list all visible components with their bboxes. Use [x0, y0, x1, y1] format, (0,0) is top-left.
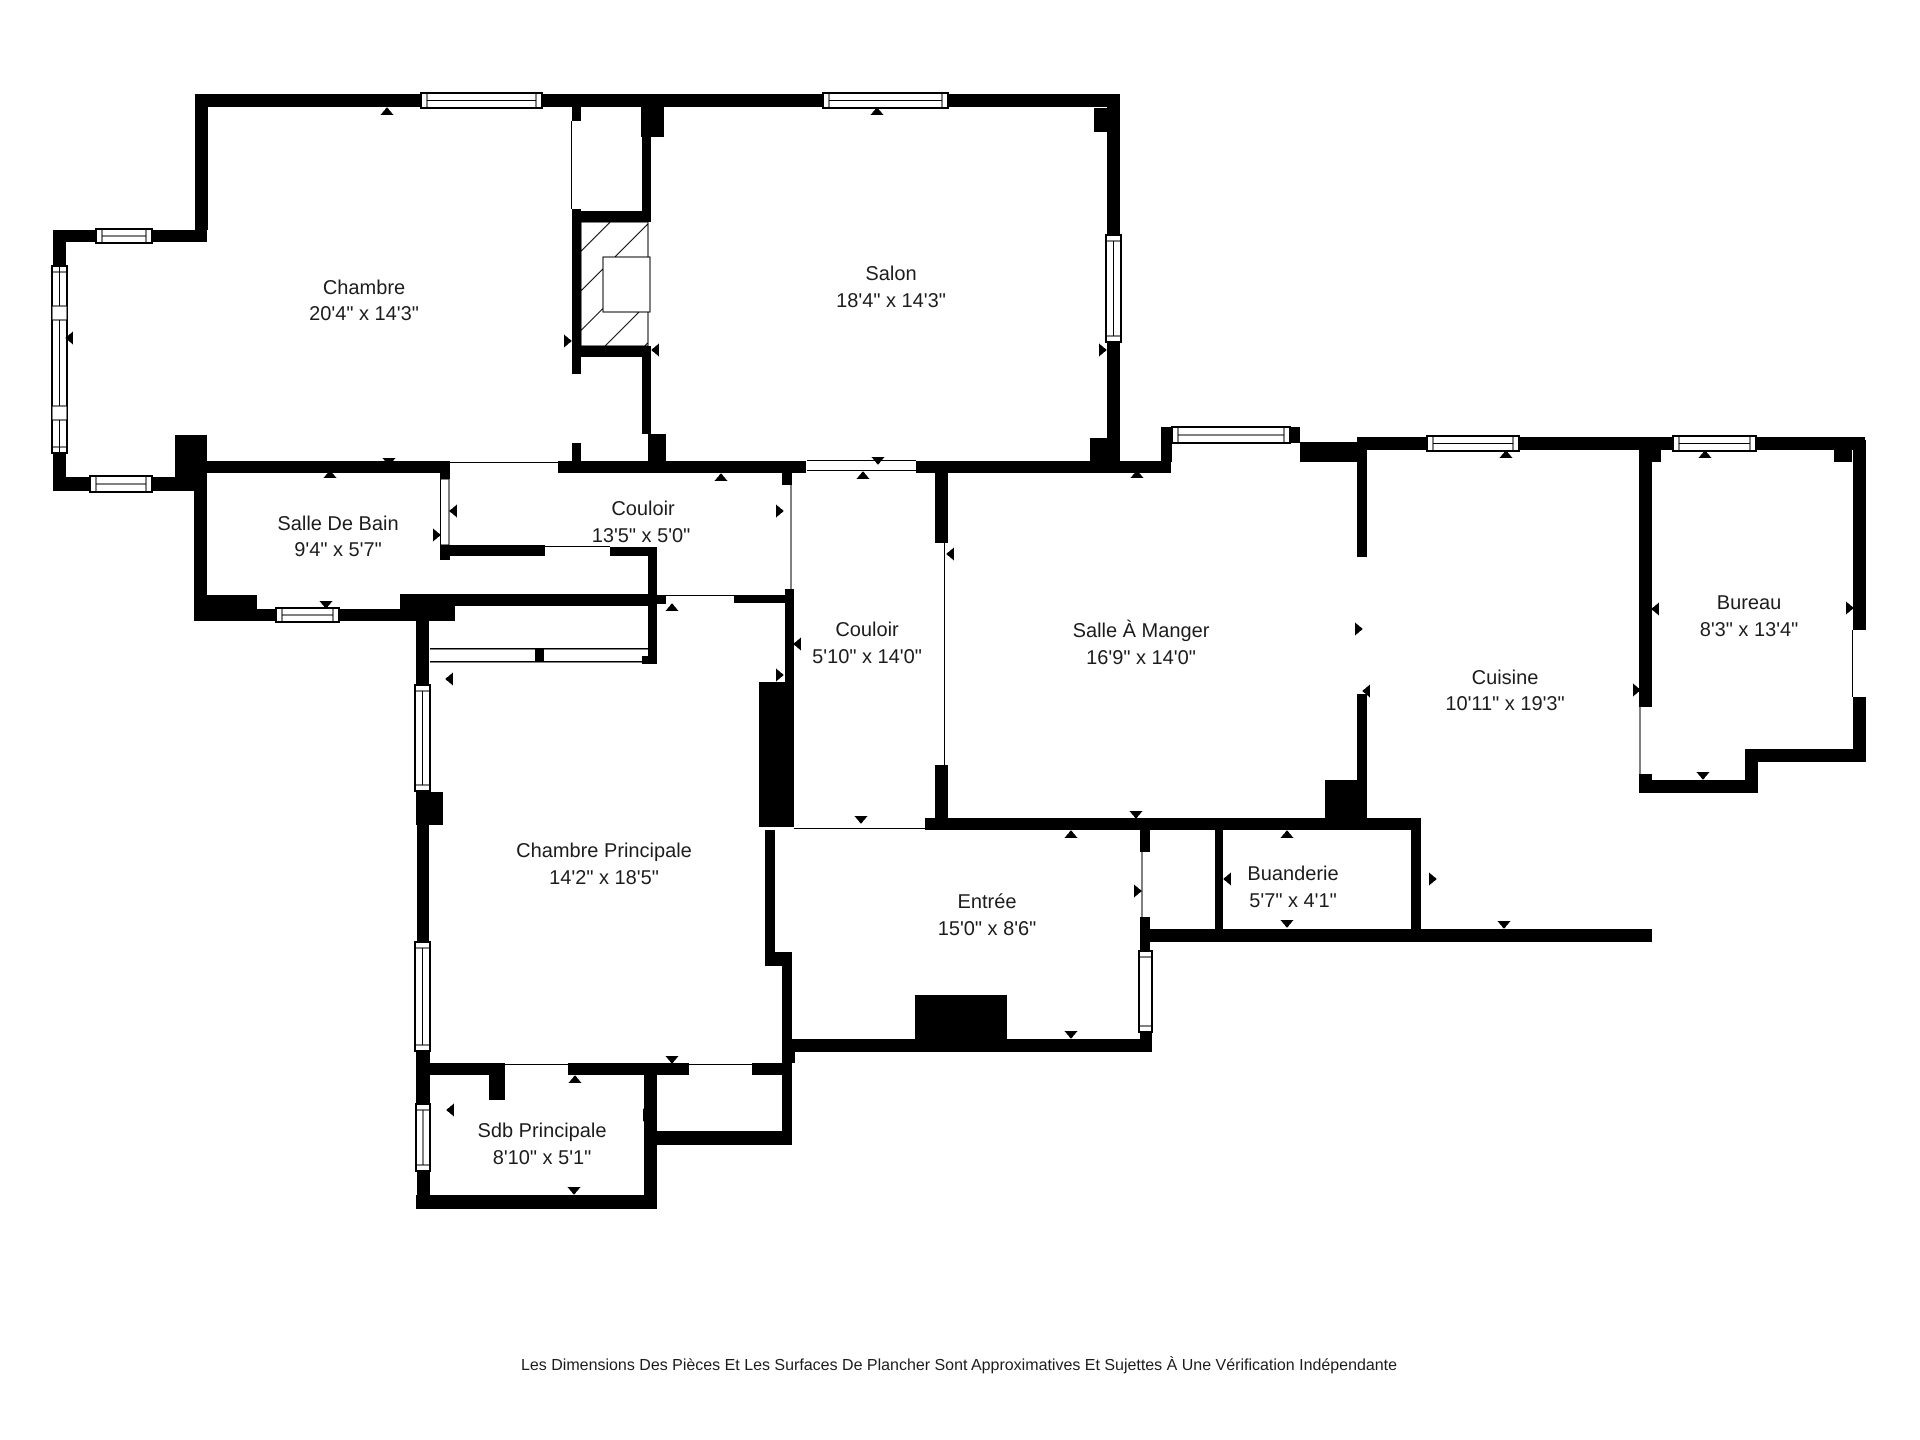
svg-text:Cuisine: Cuisine — [1472, 667, 1539, 689]
svg-text:Couloir: Couloir — [611, 498, 675, 520]
svg-text:5'7" x 4'1": 5'7" x 4'1" — [1249, 890, 1336, 912]
svg-text:15'0" x 8'6": 15'0" x 8'6" — [938, 918, 1037, 940]
svg-text:Buanderie: Buanderie — [1247, 863, 1338, 885]
svg-text:Salle De Bain: Salle De Bain — [277, 513, 398, 535]
svg-text:9'4" x 5'7": 9'4" x 5'7" — [294, 539, 381, 561]
svg-text:Chambre: Chambre — [323, 277, 405, 299]
svg-text:14'2" x 18'5": 14'2" x 18'5" — [549, 867, 659, 889]
svg-text:Salle À Manger: Salle À Manger — [1073, 619, 1210, 642]
svg-text:8'10" x 5'1": 8'10" x 5'1" — [493, 1147, 592, 1169]
svg-text:18'4" x 14'3": 18'4" x 14'3" — [836, 290, 946, 312]
svg-text:Les Dimensions Des Pièces Et L: Les Dimensions Des Pièces Et Les Surface… — [521, 1356, 1397, 1374]
svg-text:Salon: Salon — [865, 263, 916, 285]
svg-text:8'3" x 13'4": 8'3" x 13'4" — [1700, 619, 1799, 641]
svg-text:Sdb Principale: Sdb Principale — [478, 1120, 607, 1142]
svg-text:Couloir: Couloir — [835, 619, 899, 641]
svg-text:Entrée: Entrée — [958, 891, 1017, 913]
svg-text:20'4" x 14'3": 20'4" x 14'3" — [309, 303, 419, 325]
svg-text:16'9" x 14'0": 16'9" x 14'0" — [1086, 647, 1196, 669]
svg-text:13'5" x 5'0": 13'5" x 5'0" — [592, 525, 691, 547]
svg-text:Chambre Principale: Chambre Principale — [516, 840, 692, 862]
svg-text:10'11" x 19'3": 10'11" x 19'3" — [1445, 693, 1564, 715]
svg-text:Bureau: Bureau — [1717, 592, 1782, 614]
svg-text:5'10" x 14'0": 5'10" x 14'0" — [812, 646, 922, 668]
